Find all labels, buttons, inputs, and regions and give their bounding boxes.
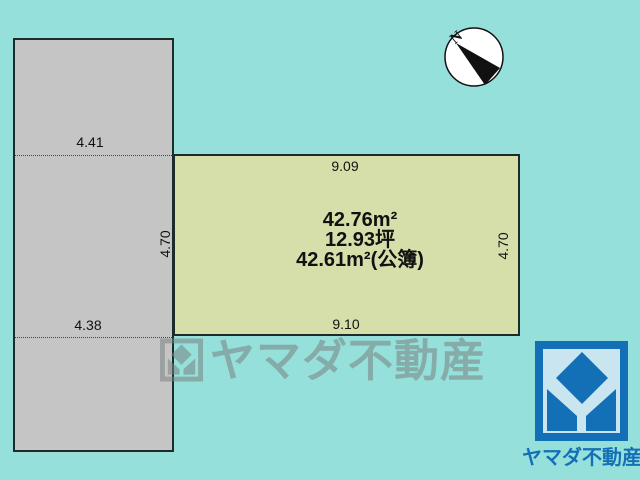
area-tsubo-line: 12.93坪: [255, 230, 465, 250]
dimension-label-adjacent-top: 4.41: [60, 134, 120, 150]
watermark-text: ヤマダ不動産: [210, 338, 486, 383]
lot-division-line-top: [15, 155, 172, 156]
lot-division-line-bottom: [15, 337, 172, 338]
adjacent-lot-shape: [13, 38, 174, 452]
brand-logo-icon: [532, 338, 631, 444]
dimension-label-property-bottom: 9.10: [316, 316, 376, 332]
dimension-label-property-side: 4.70: [495, 225, 511, 267]
area-registered-line: 42.61m²(公簿): [255, 250, 465, 270]
dimension-label-adjacent-side: 4.70: [157, 223, 173, 265]
brand-name-text: ヤマダ不動産: [522, 447, 640, 469]
lot-plan-diagram: 4.41 4.38 4.70 9.09 9.10 4.70 42.76m² 12…: [0, 0, 640, 480]
compass-north-icon: N: [443, 26, 505, 88]
brand-logo-block: ヤマダ不動産: [522, 338, 640, 469]
property-area-text: 42.76m² 12.93坪 42.61m²(公簿): [255, 210, 465, 270]
watermark: ヤマダ不動産: [160, 337, 486, 383]
dimension-label-adjacent-bottom: 4.38: [58, 317, 118, 333]
area-sqm-line: 42.76m²: [255, 210, 465, 230]
dimension-label-property-top: 9.09: [315, 158, 375, 174]
